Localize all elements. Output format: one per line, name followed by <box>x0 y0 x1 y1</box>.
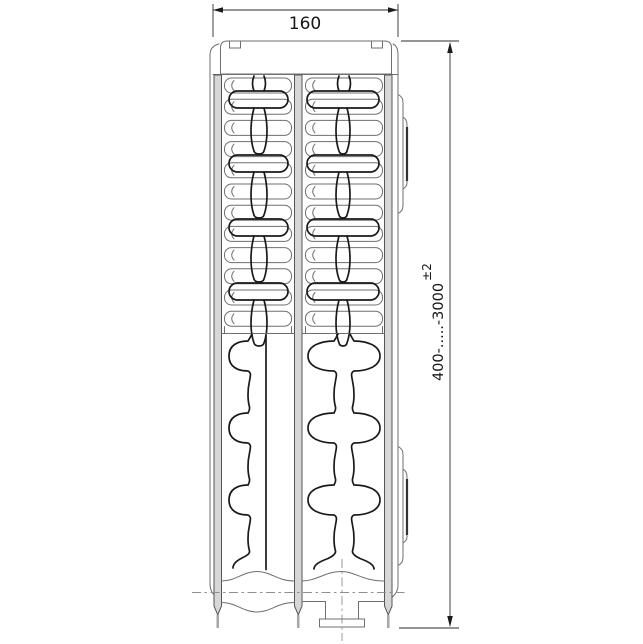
right-panel-edge <box>385 75 393 615</box>
radiator-technical-drawing-page: 160 400-.....-3000 ±2 <box>0 0 643 644</box>
arrowhead-down-icon <box>447 616 453 627</box>
header-bottom-left <box>222 603 295 613</box>
lower-mounting-bracket <box>399 447 407 565</box>
channel-period <box>229 155 288 218</box>
fin-row <box>225 248 383 263</box>
fin-row <box>225 184 383 199</box>
channel-period <box>229 91 288 154</box>
bracket-outer-tab <box>399 447 403 565</box>
channel-period <box>307 219 379 282</box>
right-channel-wave-right-edge <box>350 334 380 569</box>
width-dimension: 160 <box>213 4 398 37</box>
height-tolerance-label: ±2 <box>420 263 434 281</box>
top-cap-clip <box>372 41 383 48</box>
fin-row <box>225 226 383 241</box>
bottom-header <box>222 572 385 628</box>
header-top-right <box>302 572 385 582</box>
left-channel-wave <box>229 334 252 568</box>
radiator-body <box>192 41 408 641</box>
left-panel-edge <box>214 75 222 615</box>
channel-period <box>307 155 379 218</box>
channel-period <box>229 219 288 282</box>
arrowhead-left-icon <box>213 7 223 12</box>
channel-period <box>307 283 379 346</box>
fin-row <box>225 205 383 220</box>
upper-mounting-bracket <box>399 95 407 213</box>
bottom-connection-walls <box>302 602 385 620</box>
section-transition <box>222 327 385 334</box>
header-top-left <box>222 572 295 582</box>
fin-row <box>225 311 383 326</box>
middle-panel-edge <box>295 75 303 615</box>
fin-row <box>225 290 383 305</box>
technical-drawing-canvas: 160 400-.....-3000 ±2 <box>0 0 643 644</box>
channel-period <box>307 91 379 154</box>
convector-fins <box>225 78 383 326</box>
top-cap <box>221 41 392 74</box>
fin-row <box>225 269 383 284</box>
bracket-outer-tab <box>399 95 403 213</box>
width-dimension-label: 160 <box>289 14 321 34</box>
fin-row <box>225 120 383 135</box>
arrowhead-right-icon <box>388 7 398 12</box>
fin-row <box>225 99 383 114</box>
top-cap-clip <box>230 41 241 48</box>
channel-period <box>229 283 288 346</box>
fin-row <box>225 163 383 178</box>
right-channel-wave-left-edge <box>308 334 338 569</box>
arrowhead-up-icon <box>447 42 453 53</box>
height-dimension-label: 400-.....-3000 <box>431 283 447 381</box>
lower-water-channels <box>229 334 380 570</box>
